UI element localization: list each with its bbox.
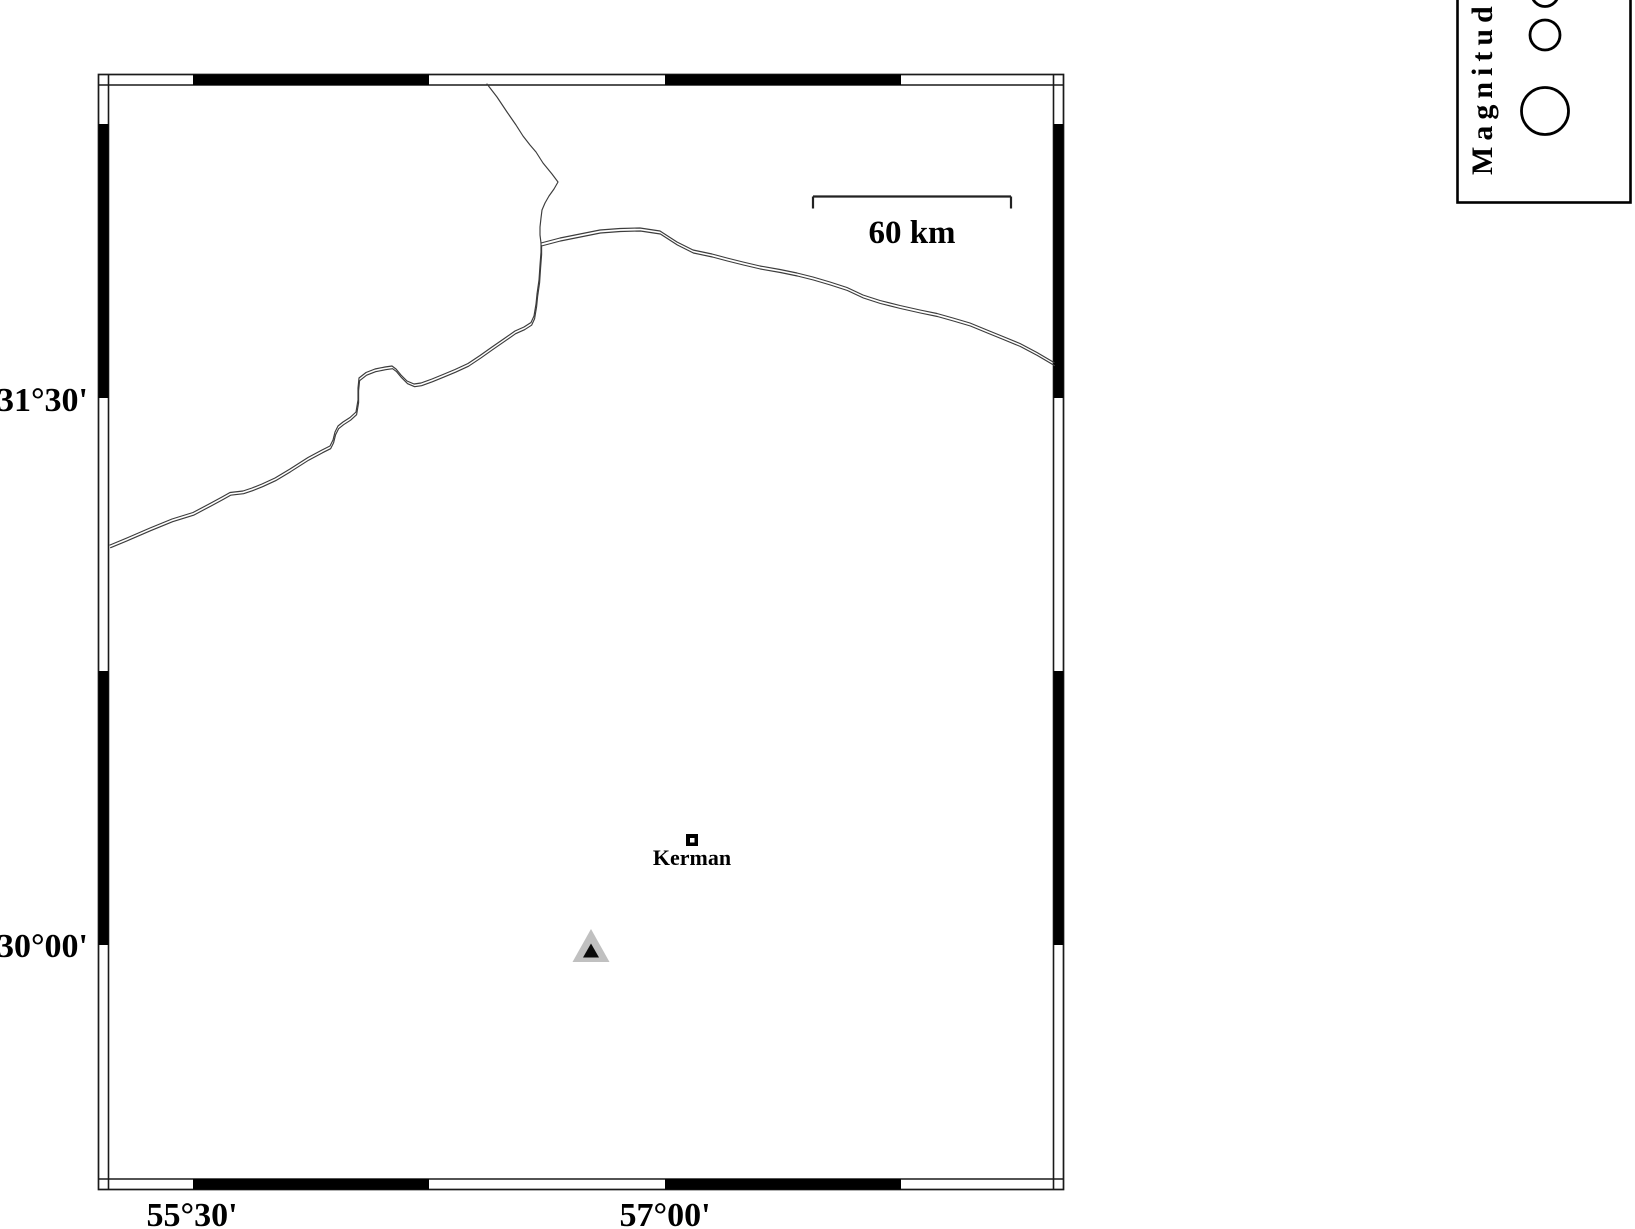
- frame-tick-segment-top-1: [193, 75, 429, 86]
- lon-label-57-00: 57°00': [619, 1197, 710, 1229]
- frame-tick-segment-bottom-1: [193, 1179, 429, 1190]
- frame-tick-segment-right-1: [1054, 124, 1064, 398]
- legend-title: Magnitude: [1466, 0, 1499, 175]
- frame-tick-segment-left-2: [99, 671, 109, 945]
- figure-canvas: 60 km 31°30' 30°00' 55°30' 57°00' Kerman…: [0, 0, 1635, 1229]
- frame-tick-segment-left-1: [99, 124, 109, 398]
- city-marker-square-hole: [690, 838, 695, 843]
- magnitude-circle-medium-icon: [1530, 20, 1560, 50]
- frame-tick-segment-top-2: [665, 75, 901, 86]
- magnitude-circle-large-icon: [1522, 88, 1569, 135]
- city-label: Kerman: [653, 845, 731, 870]
- lon-label-55-30: 55°30': [146, 1197, 237, 1229]
- figure-background: [0, 0, 1635, 1229]
- lat-label-31-30: 31°30': [0, 382, 88, 419]
- frame-tick-segment-right-2: [1054, 671, 1064, 945]
- lat-label-30-00: 30°00': [0, 928, 88, 965]
- seismicity-map-figure: 60 km 31°30' 30°00' 55°30' 57°00' Kerman…: [0, 0, 1635, 1229]
- scale-bar-label: 60 km: [868, 215, 955, 251]
- frame-tick-segment-bottom-2: [665, 1179, 901, 1190]
- magnitude-legend: Magnitude: [1458, 0, 1631, 203]
